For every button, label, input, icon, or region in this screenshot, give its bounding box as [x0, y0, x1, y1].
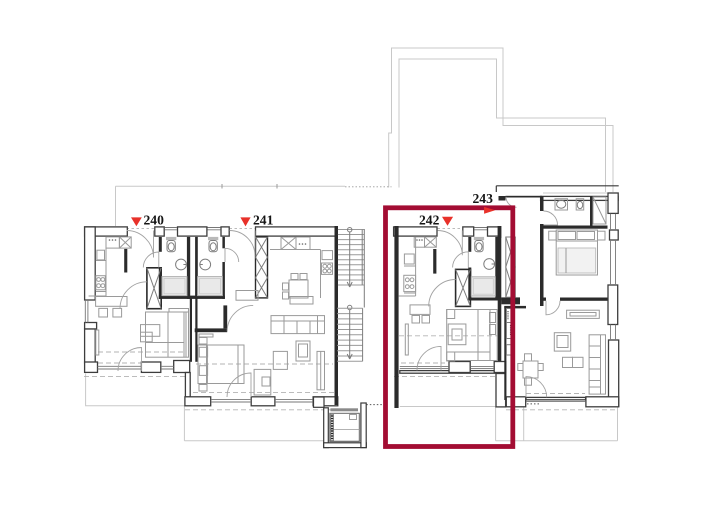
svg-text:240: 240 [144, 213, 165, 228]
svg-text:241: 241 [253, 213, 274, 228]
svg-text:243: 243 [473, 191, 494, 206]
svg-text:242: 242 [419, 213, 440, 228]
